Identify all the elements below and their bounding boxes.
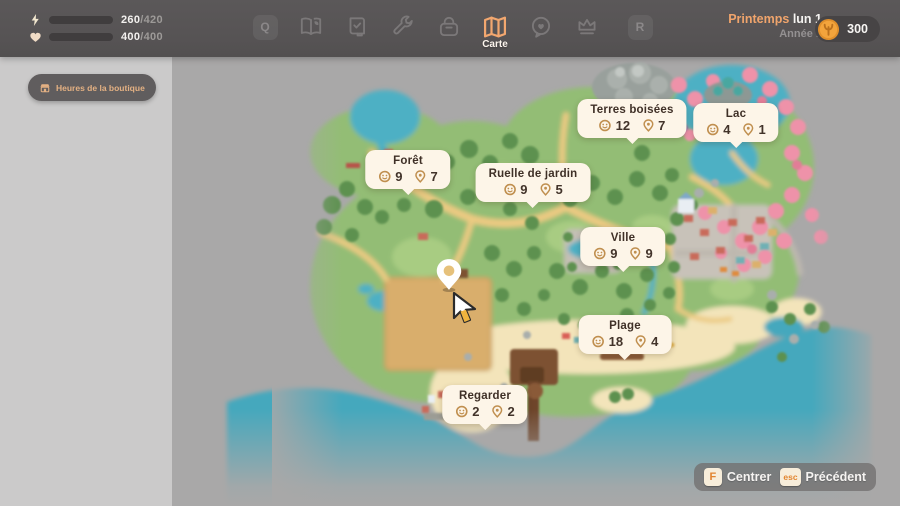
npc-icon [503, 183, 516, 196]
wrench-icon [390, 14, 416, 40]
cycle-left-keyhint: Q [251, 13, 279, 41]
npc-count: 4 [723, 122, 730, 137]
date-display: Printemps lun 1 Année 1 [728, 12, 822, 42]
cycle-right-keyhint: R [626, 13, 654, 41]
player-location-pin [435, 258, 463, 292]
help-bar: F Centrer esc Précédent [694, 463, 876, 491]
shop-hours-button[interactable]: Heures de la boutique [28, 74, 156, 101]
npc-count: 9 [520, 182, 527, 197]
f-keycap: F [704, 468, 722, 486]
region-bubble-lac[interactable]: Lac 4 1 [693, 103, 778, 142]
tab-journal[interactable] [297, 13, 325, 41]
tab-achievements[interactable] [573, 13, 601, 41]
world-map[interactable]: Terres boisées 12 7 Lac 4 1 Forêt 9 7 Ru… [172, 57, 900, 506]
year-label: Année 1 [728, 27, 822, 42]
shop-hours-label: Heures de la boutique [56, 83, 145, 93]
npc-icon [378, 170, 391, 183]
bag-icon [436, 14, 462, 40]
npc-count: 12 [616, 118, 630, 133]
npc-icon [455, 405, 468, 418]
region-bubble-foret[interactable]: Forêt 9 7 [365, 150, 450, 189]
top-bar: 260/420 400/400 Q [0, 0, 900, 57]
region-name: Regarder [455, 390, 514, 402]
location-pin-icon [492, 405, 504, 418]
region-bubble-terres-boisees[interactable]: Terres boisées 12 7 [577, 99, 686, 138]
location-pin-icon [415, 170, 427, 183]
tab-tasks[interactable] [343, 13, 371, 41]
scroll-check-icon [344, 14, 370, 40]
location-count: 7 [658, 118, 665, 133]
npc-icon [592, 335, 605, 348]
energy-row: 260/420 [28, 11, 163, 28]
location-pin-icon [635, 335, 647, 348]
location-pin-icon [630, 247, 642, 260]
region-name: Ville [593, 232, 652, 244]
region-bubble-ville[interactable]: Ville 9 9 [580, 227, 665, 266]
region-name: Forêt [378, 155, 437, 167]
region-name: Lac [706, 108, 765, 120]
island-illustration [172, 57, 900, 506]
location-count: 7 [431, 169, 438, 184]
active-tab-label: Carte [465, 39, 525, 50]
heart-icon [28, 31, 43, 43]
region-bubble-regarder[interactable]: Regarder 2 2 [442, 385, 527, 424]
lightning-icon [28, 13, 43, 27]
currency-display: 300 [815, 16, 880, 42]
shop-icon [39, 82, 51, 94]
health-bar [49, 33, 113, 41]
tab-inventory[interactable] [435, 13, 463, 41]
esc-keycap: esc [780, 468, 800, 486]
mouse-cursor [450, 291, 480, 325]
season-label: Printemps [728, 12, 789, 26]
energy-value: 260/420 [121, 14, 163, 26]
location-count: 9 [646, 246, 653, 261]
coin-icon [817, 18, 840, 41]
location-count: 5 [556, 182, 563, 197]
region-name: Terres boisées [590, 104, 673, 116]
location-count: 2 [508, 404, 515, 419]
npc-count: 9 [610, 246, 617, 261]
region-bubble-plage[interactable]: Plage 18 4 [579, 315, 672, 354]
tab-relationships[interactable] [527, 13, 555, 41]
health-row: 400/400 [28, 28, 163, 45]
money-amount: 300 [840, 22, 878, 36]
location-count: 4 [651, 334, 658, 349]
npc-icon [599, 119, 612, 132]
health-value: 400/400 [121, 31, 163, 43]
vitals-panel: 260/420 400/400 [28, 11, 163, 45]
location-pin-icon [540, 183, 552, 196]
location-pin-icon [743, 123, 755, 136]
npc-icon [593, 247, 606, 260]
energy-bar [49, 16, 113, 24]
map-icon [481, 13, 509, 41]
center-button[interactable]: F Centrer [704, 468, 771, 486]
location-pin-icon [642, 119, 654, 132]
left-sidebar: Heures de la boutique [0, 57, 172, 506]
region-name: Plage [592, 320, 659, 332]
npc-count: 18 [609, 334, 623, 349]
book-leaf-icon [298, 14, 324, 40]
npc-count: 9 [395, 169, 402, 184]
region-name: Ruelle de jardin [489, 168, 578, 180]
crown-icon [574, 14, 600, 40]
region-bubble-ruelle-de-jardin[interactable]: Ruelle de jardin 9 5 [476, 163, 591, 202]
game-screen: 260/420 400/400 Q [0, 0, 900, 506]
tab-crafting[interactable] [389, 13, 417, 41]
location-count: 1 [759, 122, 766, 137]
heart-bubble-icon [528, 14, 554, 40]
npc-icon [706, 123, 719, 136]
npc-count: 2 [472, 404, 479, 419]
back-button[interactable]: esc Précédent [780, 468, 866, 486]
tab-map-active[interactable] [481, 13, 509, 41]
